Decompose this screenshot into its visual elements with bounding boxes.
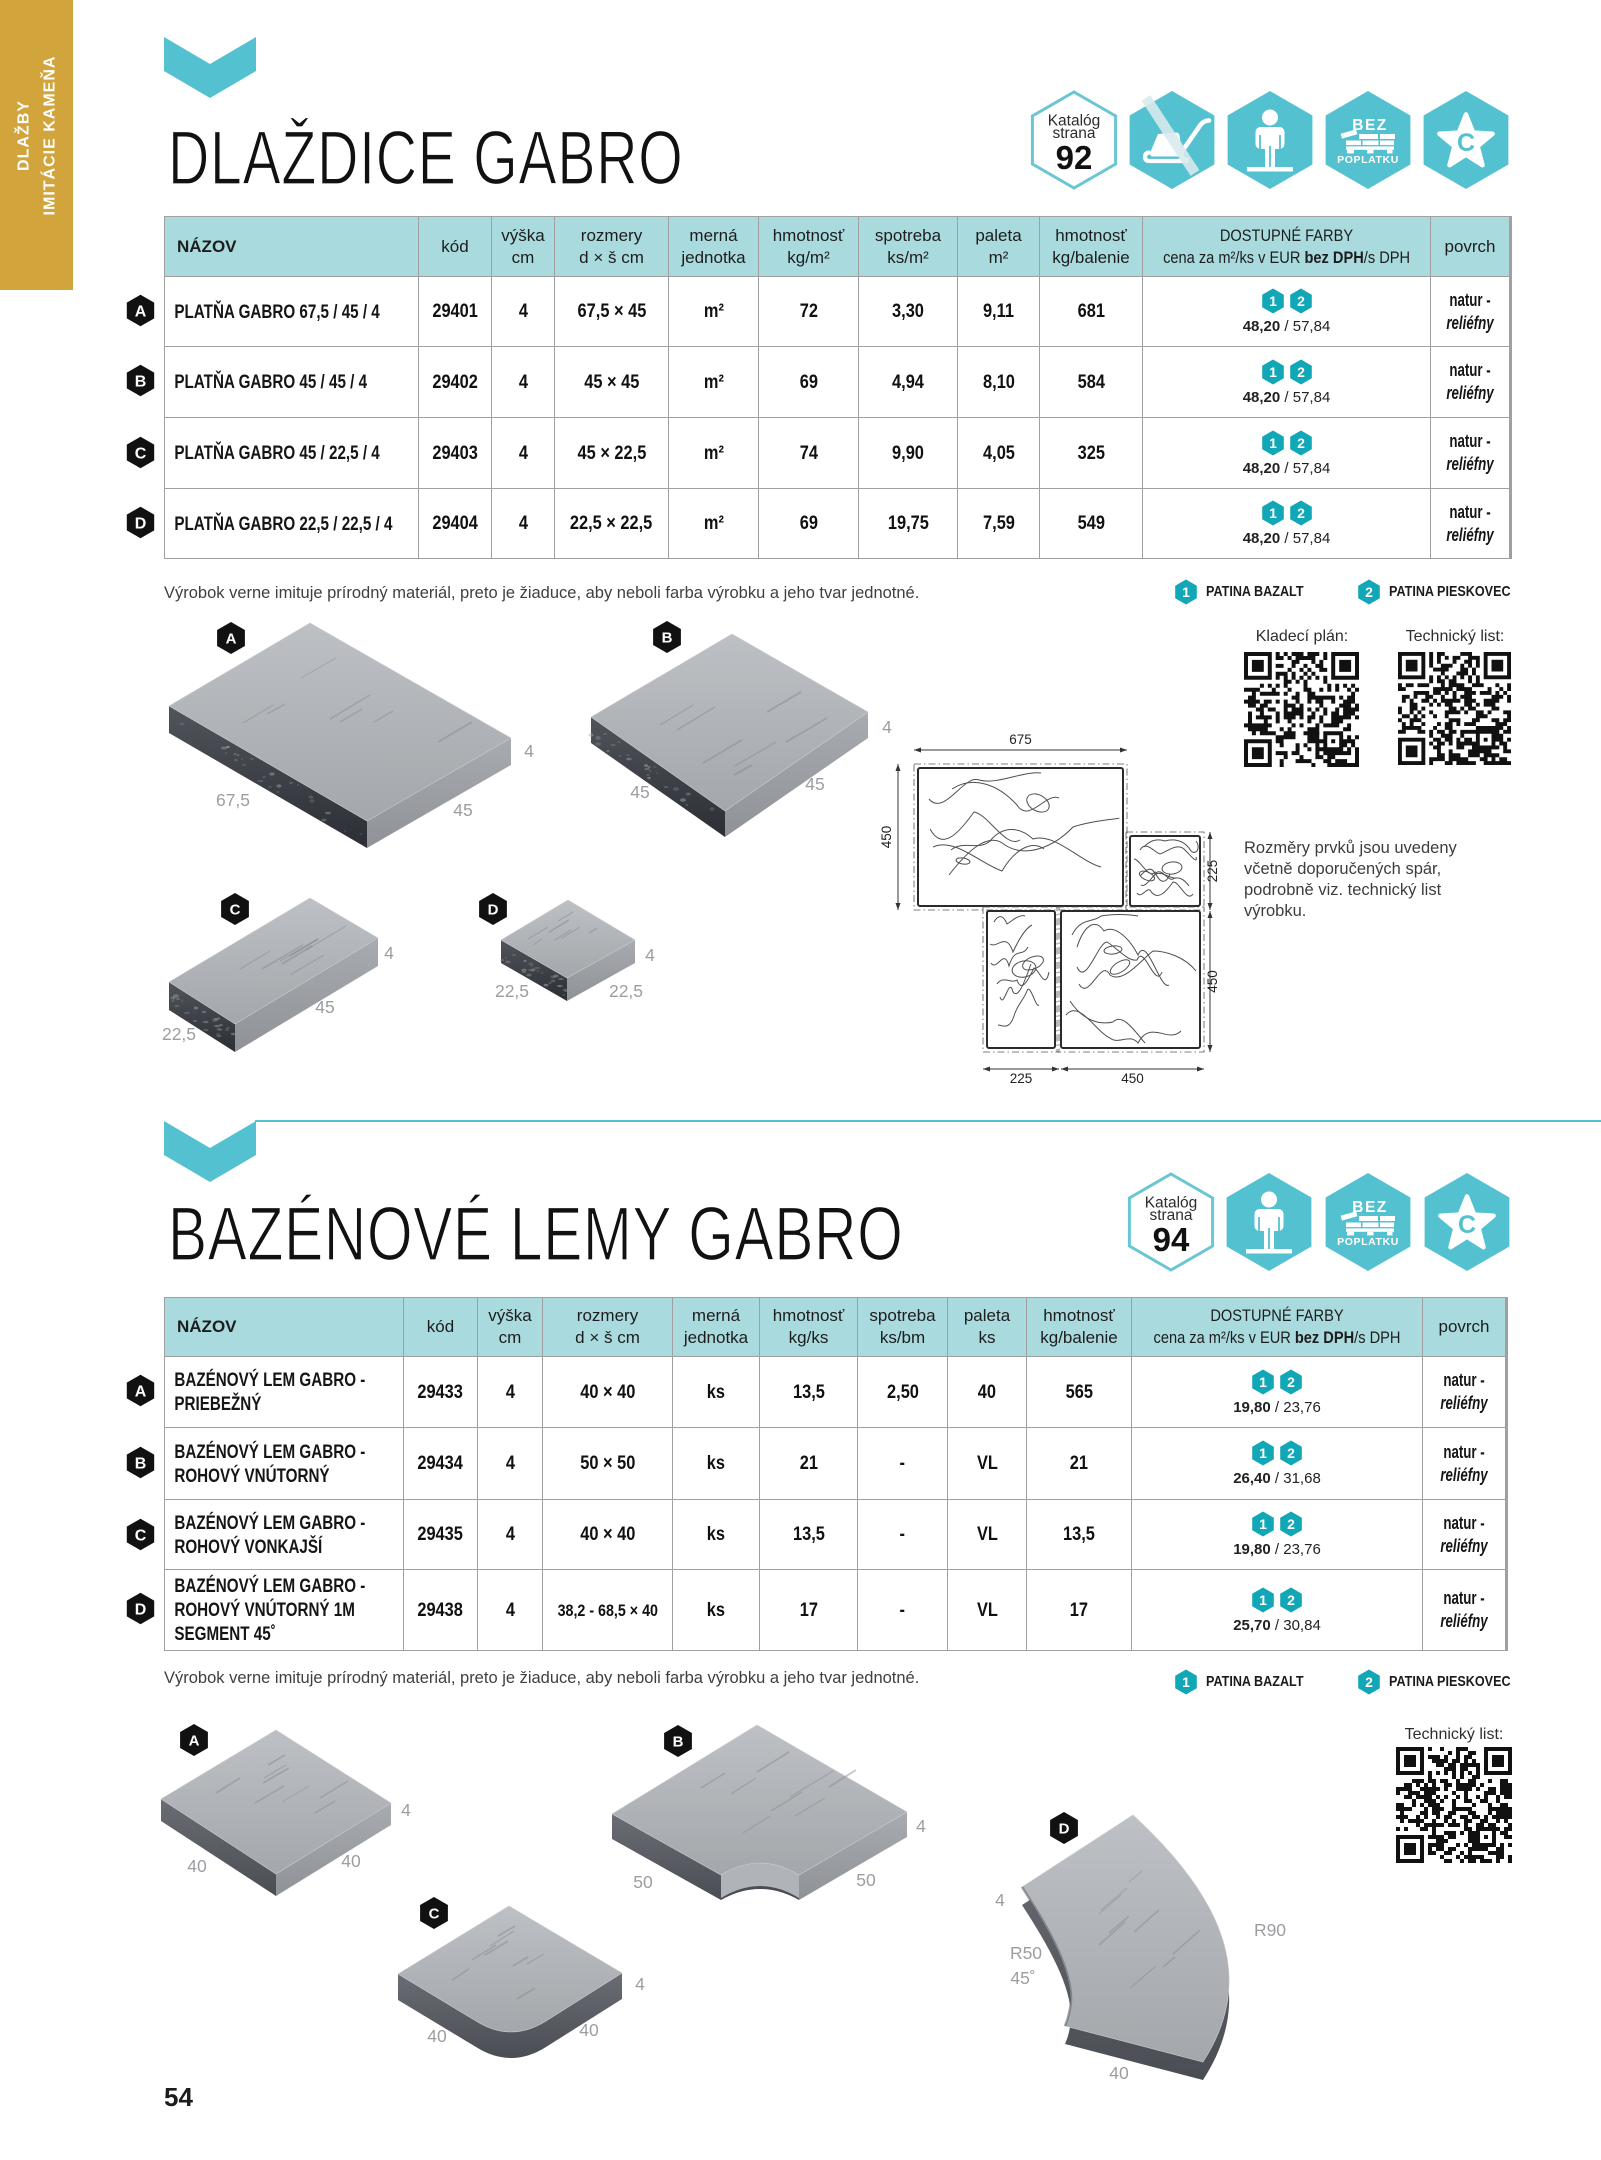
svg-text:1: 1 (1259, 1516, 1267, 1532)
svg-text:40: 40 (427, 2026, 447, 2046)
svg-text:B: B (662, 629, 673, 646)
svg-text:A: A (226, 630, 237, 647)
svg-text:1: 1 (1269, 293, 1277, 309)
svg-text:POPLATKU: POPLATKU (1337, 154, 1399, 166)
svg-text:4: 4 (995, 1890, 1005, 1910)
svg-text:2: 2 (1365, 584, 1373, 600)
svg-text:1: 1 (1259, 1374, 1267, 1390)
svg-text:225: 225 (1010, 1071, 1033, 1086)
svg-text:45: 45 (630, 782, 649, 802)
svg-text:R50: R50 (1010, 1943, 1042, 1963)
svg-text:40: 40 (1109, 2063, 1129, 2083)
svg-text:1: 1 (1269, 364, 1277, 380)
svg-text:4: 4 (401, 1800, 411, 1820)
svg-text:4: 4 (384, 943, 394, 963)
svg-text:1: 1 (1259, 1592, 1267, 1608)
svg-text:92: 92 (1056, 139, 1093, 176)
svg-text:4: 4 (524, 741, 534, 761)
svg-text:A: A (135, 1384, 147, 1401)
svg-text:45: 45 (453, 800, 472, 820)
svg-text:450: 450 (1121, 1071, 1144, 1086)
svg-text:450: 450 (879, 826, 894, 849)
svg-text:2: 2 (1297, 293, 1305, 309)
svg-text:2: 2 (1297, 435, 1305, 451)
svg-text:POPLATKU: POPLATKU (1337, 1236, 1399, 1248)
svg-text:22,5: 22,5 (495, 981, 529, 1001)
svg-text:4: 4 (635, 1974, 645, 1994)
svg-text:40: 40 (341, 1851, 361, 1871)
svg-text:BEZ: BEZ (1352, 1199, 1388, 1216)
svg-text:D: D (135, 516, 147, 533)
svg-text:2: 2 (1297, 505, 1305, 521)
svg-text:50: 50 (856, 1870, 876, 1890)
svg-text:675: 675 (1009, 732, 1032, 747)
svg-text:2: 2 (1287, 1592, 1295, 1608)
svg-text:4: 4 (916, 1816, 926, 1836)
svg-text:C: C (429, 1905, 440, 1922)
svg-text:1: 1 (1259, 1445, 1267, 1461)
svg-text:40: 40 (579, 2020, 599, 2040)
svg-text:A: A (189, 1732, 200, 1749)
svg-text:R90: R90 (1254, 1920, 1286, 1940)
svg-text:1: 1 (1182, 584, 1190, 600)
svg-text:C: C (230, 901, 241, 918)
svg-text:2: 2 (1365, 1674, 1373, 1690)
svg-text:D: D (135, 1602, 147, 1619)
svg-text:B: B (673, 1733, 684, 1750)
svg-text:22,5: 22,5 (162, 1024, 196, 1044)
svg-text:2: 2 (1287, 1374, 1295, 1390)
svg-text:D: D (1059, 1820, 1070, 1837)
svg-text:45: 45 (805, 774, 824, 794)
svg-text:45: 45 (315, 997, 334, 1017)
svg-text:1: 1 (1182, 1674, 1190, 1690)
svg-text:67,5: 67,5 (216, 790, 250, 810)
svg-text:2: 2 (1287, 1445, 1295, 1461)
svg-text:50: 50 (633, 1872, 653, 1892)
svg-text:D: D (488, 901, 499, 918)
svg-text:B: B (135, 374, 147, 391)
svg-text:C: C (135, 446, 147, 463)
svg-text:BEZ: BEZ (1352, 117, 1388, 134)
svg-text:45˚: 45˚ (1010, 1968, 1035, 1988)
svg-text:225: 225 (1205, 860, 1220, 883)
svg-text:40: 40 (187, 1856, 207, 1876)
svg-text:4: 4 (645, 945, 655, 965)
svg-text:2: 2 (1287, 1516, 1295, 1532)
svg-text:2: 2 (1297, 364, 1305, 380)
svg-text:450: 450 (1205, 970, 1220, 993)
svg-text:C: C (1458, 1211, 1476, 1239)
svg-text:B: B (135, 1456, 147, 1473)
svg-text:94: 94 (1153, 1221, 1190, 1258)
svg-text:C: C (1457, 129, 1475, 157)
svg-text:A: A (135, 304, 147, 321)
svg-text:1: 1 (1269, 505, 1277, 521)
svg-text:1: 1 (1269, 435, 1277, 451)
svg-text:C: C (135, 1528, 147, 1545)
svg-text:22,5: 22,5 (609, 981, 643, 1001)
